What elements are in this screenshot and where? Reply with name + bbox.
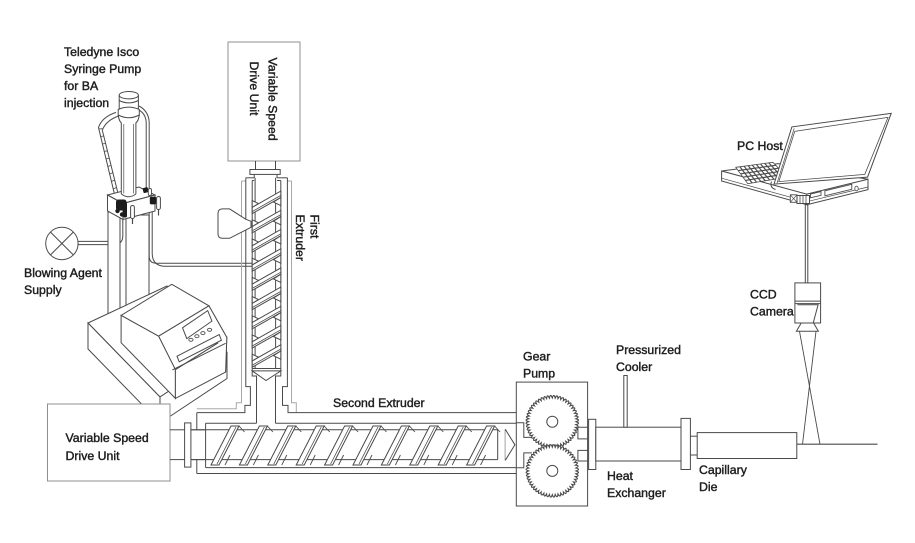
svg-text:Extruder: Extruder xyxy=(293,215,307,261)
svg-text:for BA: for BA xyxy=(64,79,99,93)
svg-text:Second Extruder: Second Extruder xyxy=(333,396,425,410)
svg-text:First: First xyxy=(308,215,322,239)
svg-text:Gear: Gear xyxy=(523,350,550,364)
svg-text:Camera: Camera xyxy=(750,305,794,319)
svg-text:Die: Die xyxy=(699,480,718,494)
svg-text:PC Host: PC Host xyxy=(737,139,783,153)
svg-text:Drive Unit: Drive Unit xyxy=(66,449,121,463)
svg-text:Variable Speed: Variable Speed xyxy=(266,58,280,141)
svg-text:Heat: Heat xyxy=(607,469,634,483)
svg-text:Teledyne Isco: Teledyne Isco xyxy=(64,45,139,59)
svg-text:CCD: CCD xyxy=(750,288,777,302)
svg-text:injection: injection xyxy=(64,96,109,110)
svg-text:Variable Speed: Variable Speed xyxy=(66,431,149,445)
svg-text:Exchanger: Exchanger xyxy=(607,486,666,500)
svg-text:Pressurized: Pressurized xyxy=(616,343,681,357)
svg-text:Capillary: Capillary xyxy=(699,463,748,477)
svg-text:Syringe Pump: Syringe Pump xyxy=(64,62,141,76)
svg-text:Blowing Agent: Blowing Agent xyxy=(24,266,103,280)
svg-text:Drive Unit: Drive Unit xyxy=(247,62,261,117)
svg-text:Supply: Supply xyxy=(24,283,62,297)
svg-text:Cooler: Cooler xyxy=(616,360,652,374)
svg-text:Pump: Pump xyxy=(523,367,555,381)
